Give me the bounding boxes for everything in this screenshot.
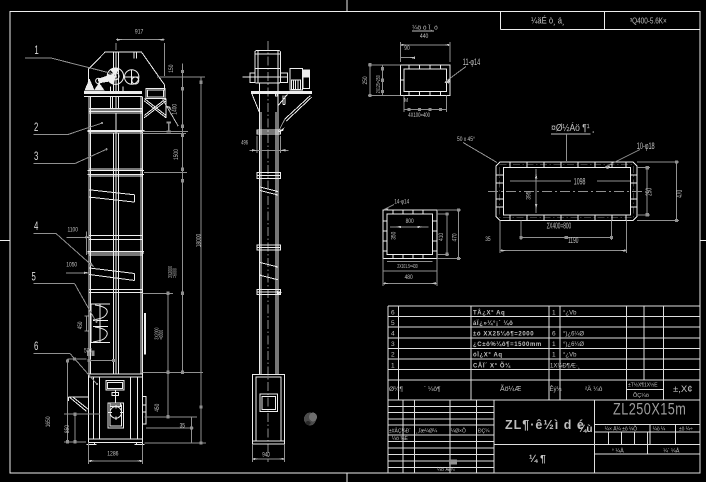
svg-text:2X400=800: 2X400=800: [547, 223, 572, 231]
svg-text:áÏ¿»¼°¡´ ¼ô: áÏ¿»¼°¡´ ¼ô: [473, 320, 513, 327]
svg-text:1X¼Ð¶Æ·¸: 1X¼Ð¶Æ·¸: [550, 363, 580, 369]
svg-text:1: 1: [391, 362, 395, 369]
svg-text:1650: 1650: [46, 416, 53, 427]
svg-text:480: 480: [405, 275, 413, 282]
svg-text:6: 6: [391, 309, 395, 316]
svg-text:ÐÇ¼: ÐÇ¼: [478, 428, 490, 434]
svg-text:4: 4: [34, 221, 39, 234]
svg-text:35: 35: [485, 237, 490, 244]
svg-text:¼ù: ¼ù: [578, 424, 592, 435]
svg-text:3: 3: [34, 150, 39, 163]
svg-text:¼ö ¼: ¼ö ¼: [653, 427, 666, 433]
svg-text:4X100=400: 4X100=400: [408, 112, 430, 119]
svg-text:±ô ¼÷: ±ô ¼÷: [679, 427, 693, 433]
svg-text:ZL250X15m: ZL250X15m: [613, 401, 686, 419]
svg-text:°)¿6¼Ø: °)¿6¼Ø: [563, 332, 584, 338]
svg-text:TÅ¿X° Aq: TÅ¿X° Aq: [473, 309, 505, 316]
svg-text:800: 800: [406, 219, 414, 226]
svg-text:250: 250: [362, 76, 369, 84]
svg-text:Ãö¼Æ: Ãö¼Æ: [500, 384, 521, 393]
svg-text:850: 850: [64, 425, 71, 433]
svg-text:=6000: =6000: [158, 329, 164, 339]
svg-text:1050: 1050: [66, 262, 77, 269]
svg-text:ÕÇ¼ö: ÕÇ¼ö: [633, 392, 649, 399]
svg-text:35: 35: [180, 423, 185, 430]
svg-text:917: 917: [135, 29, 143, 36]
svg-text:14-φ14: 14-φ14: [394, 199, 409, 206]
svg-text:±#ÂÇ¼Ð´: ±#ÂÇ¼Ð´: [389, 427, 411, 434]
svg-text:6: 6: [34, 341, 39, 354]
svg-text:Ø¼¶: Ø¼¶: [389, 386, 403, 393]
svg-text:ZL¶·ê½ì d é: ZL¶·ê½ì d é: [505, 418, 585, 432]
svg-text:¼× Ä¼ ±ô ¼Õ: ¼× Ä¼ ±ô ¼Õ: [605, 426, 637, 433]
svg-text:4: 4: [391, 331, 395, 338]
svg-text:1286: 1286: [107, 451, 118, 458]
svg-text:11-φ14: 11-φ14: [463, 56, 480, 67]
svg-text:5: 5: [391, 320, 395, 327]
svg-text:¼ô Æ¼: ¼ô Æ¼: [437, 467, 455, 473]
svg-text:Êý¼: Êý¼: [550, 385, 563, 393]
svg-text:¼äÉ ò¸ á¸: ¼äÉ ò¸ á¸: [531, 15, 565, 26]
svg-text:1400: 1400: [172, 104, 179, 115]
svg-text:440: 440: [420, 34, 428, 41]
svg-text:1: 1: [552, 309, 556, 316]
svg-text:496: 496: [241, 139, 248, 146]
svg-text:±ó XX25¼ô¶=2000: ±ó XX25¼ô¶=2000: [473, 331, 534, 338]
svg-text:250: 250: [646, 188, 654, 196]
svg-text:410: 410: [438, 233, 445, 241]
svg-text:¿C±ô%¼ô¶=1500mm: ¿C±ô%¼ô¶=1500mm: [473, 341, 542, 348]
svg-text:M: M: [404, 98, 408, 104]
svg-text:²Ä ¼ô: ²Ä ¼ô: [585, 385, 603, 393]
svg-text:=6000: =6000: [172, 268, 178, 278]
svg-text:1100: 1100: [68, 227, 78, 234]
svg-text:¤Ø½Áö ¶¹ ¸: ¤Ø½Áö ¶¹ ¸: [551, 123, 595, 134]
svg-text:2X101.5=430: 2X101.5=430: [397, 263, 418, 269]
svg-text:¼´ ¼Å: ¼´ ¼Å: [663, 447, 680, 454]
svg-text:1: 1: [552, 341, 556, 348]
svg-text:470: 470: [452, 233, 459, 241]
svg-text:2: 2: [391, 352, 395, 359]
svg-text:50 x 45°: 50 x 45°: [457, 136, 475, 143]
svg-text:3: 3: [391, 341, 395, 348]
svg-text:5: 5: [32, 271, 37, 284]
svg-text:¸,Ïæ¼Ø¼: ¸,Ïæ¼Ø¼: [416, 427, 438, 434]
svg-text:2: 2: [34, 121, 39, 134]
svg-text:150: 150: [169, 65, 176, 73]
svg-text:350: 350: [391, 232, 398, 240]
svg-text:° ¼Å: ° ¼Å: [612, 447, 624, 454]
svg-text:6: 6: [552, 331, 556, 338]
svg-text:395: 395: [526, 192, 533, 200]
svg-text:óÏ¿X° Aq: óÏ¿X° Aq: [473, 352, 503, 359]
svg-text:1190: 1190: [568, 237, 579, 245]
svg-text:500: 500: [84, 348, 92, 355]
svg-text:³Q400-5.6K×: ³Q400-5.6K×: [630, 16, 667, 26]
svg-text:450: 450: [154, 404, 161, 412]
svg-text:18000: 18000: [196, 234, 203, 248]
svg-text:1098: 1098: [574, 176, 586, 187]
svg-text:CÂÏ´ X° Õ¼: CÂÏ´ X° Õ¼: [473, 362, 511, 369]
svg-text:¼Ø×Õ: ¼Ø×Õ: [451, 427, 466, 434]
svg-text:470: 470: [676, 190, 684, 198]
svg-text:±T½X¶1X½E: ±T½X¶1X½E: [628, 382, 658, 389]
svg-text:±,X¢: ±,X¢: [673, 384, 692, 395]
svg-text:450: 450: [77, 322, 84, 330]
svg-text:¼ö ¾É: ¼ö ¾É: [392, 435, 409, 442]
svg-text:1: 1: [34, 45, 39, 58]
svg-text:¼ ¶: ¼ ¶: [529, 454, 546, 465]
svg-text:°)¿6¼Ø: °)¿6¼Ø: [563, 342, 584, 348]
svg-text:940: 940: [262, 452, 270, 459]
svg-text:¼ö ó Ï¸ ó: ¼ö ó Ï¸ ó: [412, 24, 438, 32]
svg-text:´ ¼ô¶: ´ ¼ô¶: [424, 386, 441, 393]
svg-text:1: 1: [552, 352, 556, 359]
svg-text:2X125=250: 2X125=250: [375, 75, 381, 93]
svg-text:1500: 1500: [173, 149, 180, 160]
svg-text:90: 90: [404, 45, 409, 52]
svg-text:°¿Vb: °¿Vb: [563, 353, 577, 359]
svg-text:°¿Vb: °¿Vb: [563, 310, 577, 316]
